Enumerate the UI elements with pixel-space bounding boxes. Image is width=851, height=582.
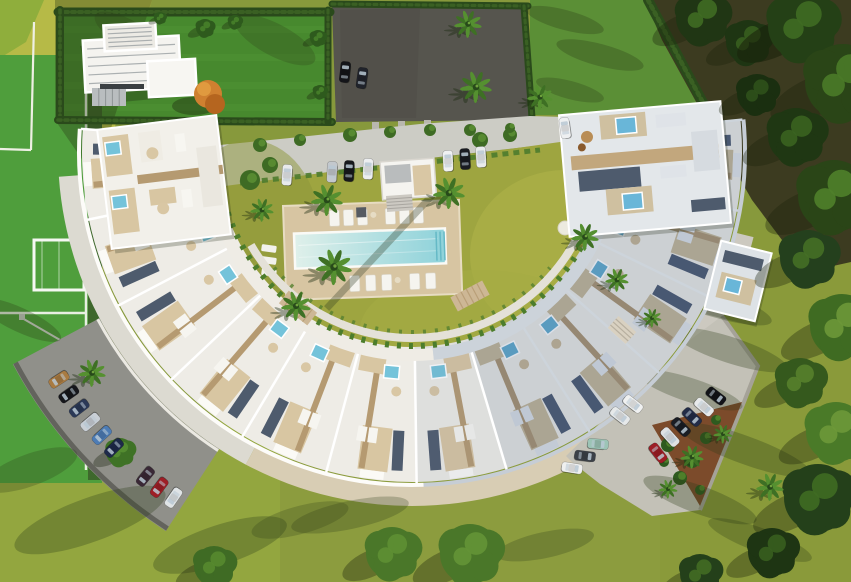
roof-parapet (83, 162, 93, 186)
palm-crown-highlight (476, 85, 479, 88)
palm-crown-highlight (770, 485, 773, 488)
tree-canopy (205, 27, 214, 36)
car-rear-window (364, 172, 371, 175)
tree-canopy (318, 37, 326, 45)
palm-crown-highlight (652, 316, 654, 318)
tree-canopy (119, 451, 133, 465)
car-roof (568, 464, 576, 473)
palm-crown (465, 21, 471, 27)
car-roof (581, 452, 588, 460)
roof-table (391, 386, 401, 396)
tree-canopy (391, 550, 417, 576)
palm-crown (89, 370, 95, 376)
shower-pad (356, 207, 366, 217)
pool-steps (436, 232, 437, 261)
tree-canopy-highlight (689, 570, 701, 582)
roof-panel (392, 430, 405, 470)
car (363, 158, 374, 180)
tree-canopy-highlight (814, 188, 836, 210)
garden-bush-highlight (478, 134, 486, 142)
palm-crown-highlight (668, 487, 670, 489)
kiosk-roof (384, 164, 411, 184)
sun-lounger (343, 210, 354, 226)
roof-feature (660, 164, 687, 178)
palm-crown-highlight (617, 278, 619, 280)
tree-canopy-highlight (820, 425, 838, 443)
tree-canopy (807, 255, 835, 283)
rooftop-jacuzzi (111, 195, 127, 210)
tree-canopy-highlight (781, 130, 798, 147)
car-windshield (477, 150, 484, 154)
palm-crown-highlight (327, 198, 330, 201)
villa-roof (147, 59, 197, 97)
aerial-site-plan (0, 0, 851, 582)
sun-lounger (425, 273, 436, 289)
car-rear-window (328, 175, 335, 178)
tree-canopy-highlight (822, 74, 845, 97)
car-roof (364, 166, 372, 173)
car-roof (358, 75, 366, 82)
villa-roof-slab (147, 59, 197, 97)
palm-crown-highlight (449, 191, 452, 194)
right-tip-building (559, 101, 734, 242)
pool-steps (444, 231, 445, 260)
rooftop-jacuzzi (615, 117, 636, 135)
pool-steps (440, 232, 441, 261)
car (587, 438, 609, 451)
car (339, 61, 352, 84)
garden-bush-highlight (429, 125, 435, 131)
roof-table (301, 362, 311, 372)
orange-tree (205, 94, 225, 114)
lot-texture (340, 8, 420, 118)
court-line (0, 149, 31, 150)
palm-crown-highlight (692, 455, 694, 457)
garden-bush-highlight (259, 140, 266, 147)
garden-steps (386, 194, 413, 212)
rooftop-jacuzzi (622, 192, 643, 210)
palm-crown-highlight (540, 95, 542, 97)
car-roof (561, 125, 569, 132)
villa-roof (103, 23, 156, 52)
car-roof (594, 440, 601, 448)
bed-plant-highlight (715, 415, 721, 421)
palm-crown (767, 484, 773, 490)
tree-canopy (771, 550, 795, 574)
palm-crown-highlight (468, 22, 471, 25)
rooftop-jacuzzi (723, 277, 742, 294)
tree-canopy (469, 551, 499, 581)
palm-crown-highlight (723, 432, 725, 434)
tree-canopy (160, 17, 166, 23)
car-roof (341, 69, 349, 76)
garden-bush-highlight (510, 124, 515, 129)
tree-canopy (816, 495, 850, 529)
tree-canopy-highlight (203, 562, 215, 574)
car (343, 160, 355, 182)
kiosk-awning (412, 164, 432, 195)
garden-bush-highlight (389, 127, 395, 133)
tree-canopy-highlight (314, 36, 319, 41)
tree-canopy-highlight (316, 90, 320, 94)
garden-bush-highlight (268, 159, 276, 167)
roof-feature (655, 112, 686, 128)
garden-bush-highlight (349, 130, 356, 137)
garden-bush-highlight (247, 173, 257, 183)
orange-tree-highlight (197, 82, 211, 96)
car-windshield (444, 154, 451, 158)
car (459, 148, 471, 170)
entrance-kiosk (380, 158, 437, 200)
car-roof (328, 169, 336, 176)
tree-canopy (320, 91, 327, 98)
villa-window-strip (100, 84, 144, 89)
palm-crown (293, 303, 299, 309)
tree-canopy-highlight (799, 491, 819, 511)
steps-slab (386, 194, 413, 212)
sun-lounger (381, 274, 392, 290)
tree-canopy-highlight (378, 547, 394, 563)
tree-canopy-highlight (787, 377, 801, 391)
palm-crown-highlight (262, 208, 264, 210)
rooftop-jacuzzi (384, 365, 400, 379)
palm-crown-highlight (585, 235, 588, 238)
villa-terrace (92, 88, 126, 106)
tree-canopy (799, 380, 823, 404)
car (281, 164, 293, 186)
roof-feature (691, 130, 720, 172)
car-rear-window (445, 164, 452, 167)
car-roof (283, 172, 291, 179)
palm-crown (582, 234, 588, 240)
tree-canopy (795, 133, 823, 161)
car-roof (444, 158, 452, 165)
sun-lounger (329, 210, 340, 226)
roof-table (204, 275, 214, 285)
tree-canopy-highlight (759, 547, 773, 561)
car-windshield (461, 152, 468, 156)
car-roof (477, 154, 485, 161)
tree-canopy-highlight (157, 17, 161, 21)
car-rear-window (283, 178, 290, 181)
tree-canopy (756, 92, 776, 112)
sun-lounger (365, 275, 376, 291)
car-roof (461, 156, 469, 163)
garden-bush-highlight (469, 125, 475, 131)
tree-canopy-highlight (746, 90, 758, 102)
car-windshield (346, 164, 353, 168)
palm-crown-highlight (333, 264, 336, 267)
tree-canopy (235, 21, 242, 28)
tree-canopy-highlight (783, 19, 803, 39)
tree-canopy-highlight (200, 26, 205, 31)
tree-canopy-highlight (454, 547, 472, 565)
bed-plant-highlight (678, 472, 686, 480)
car-rear-window (345, 174, 352, 177)
tree-canopy-highlight (231, 20, 235, 24)
tree-canopy (701, 15, 727, 41)
car-windshield (365, 162, 372, 166)
car-windshield (284, 168, 291, 172)
left-tip-building (97, 115, 234, 254)
rooftop-jacuzzi (105, 141, 121, 156)
car-rear-window (462, 162, 469, 165)
garden-bush-highlight (299, 135, 305, 141)
car-rear-window (478, 160, 485, 163)
car-windshield (329, 165, 336, 169)
car-roof (345, 168, 353, 175)
roof-table (268, 343, 278, 353)
tree-canopy-highlight (824, 319, 843, 338)
palm-crown-highlight (296, 304, 299, 307)
tree-canopy-highlight (793, 252, 810, 269)
palm-crown-highlight (92, 371, 95, 374)
car (326, 161, 338, 183)
car (475, 146, 487, 168)
car-rear-window (591, 440, 595, 447)
tree-canopy-highlight (688, 12, 704, 28)
sun-lounger (409, 273, 420, 289)
car-windshield (601, 441, 605, 448)
car (443, 150, 454, 172)
aerial-site-render (0, 0, 851, 582)
